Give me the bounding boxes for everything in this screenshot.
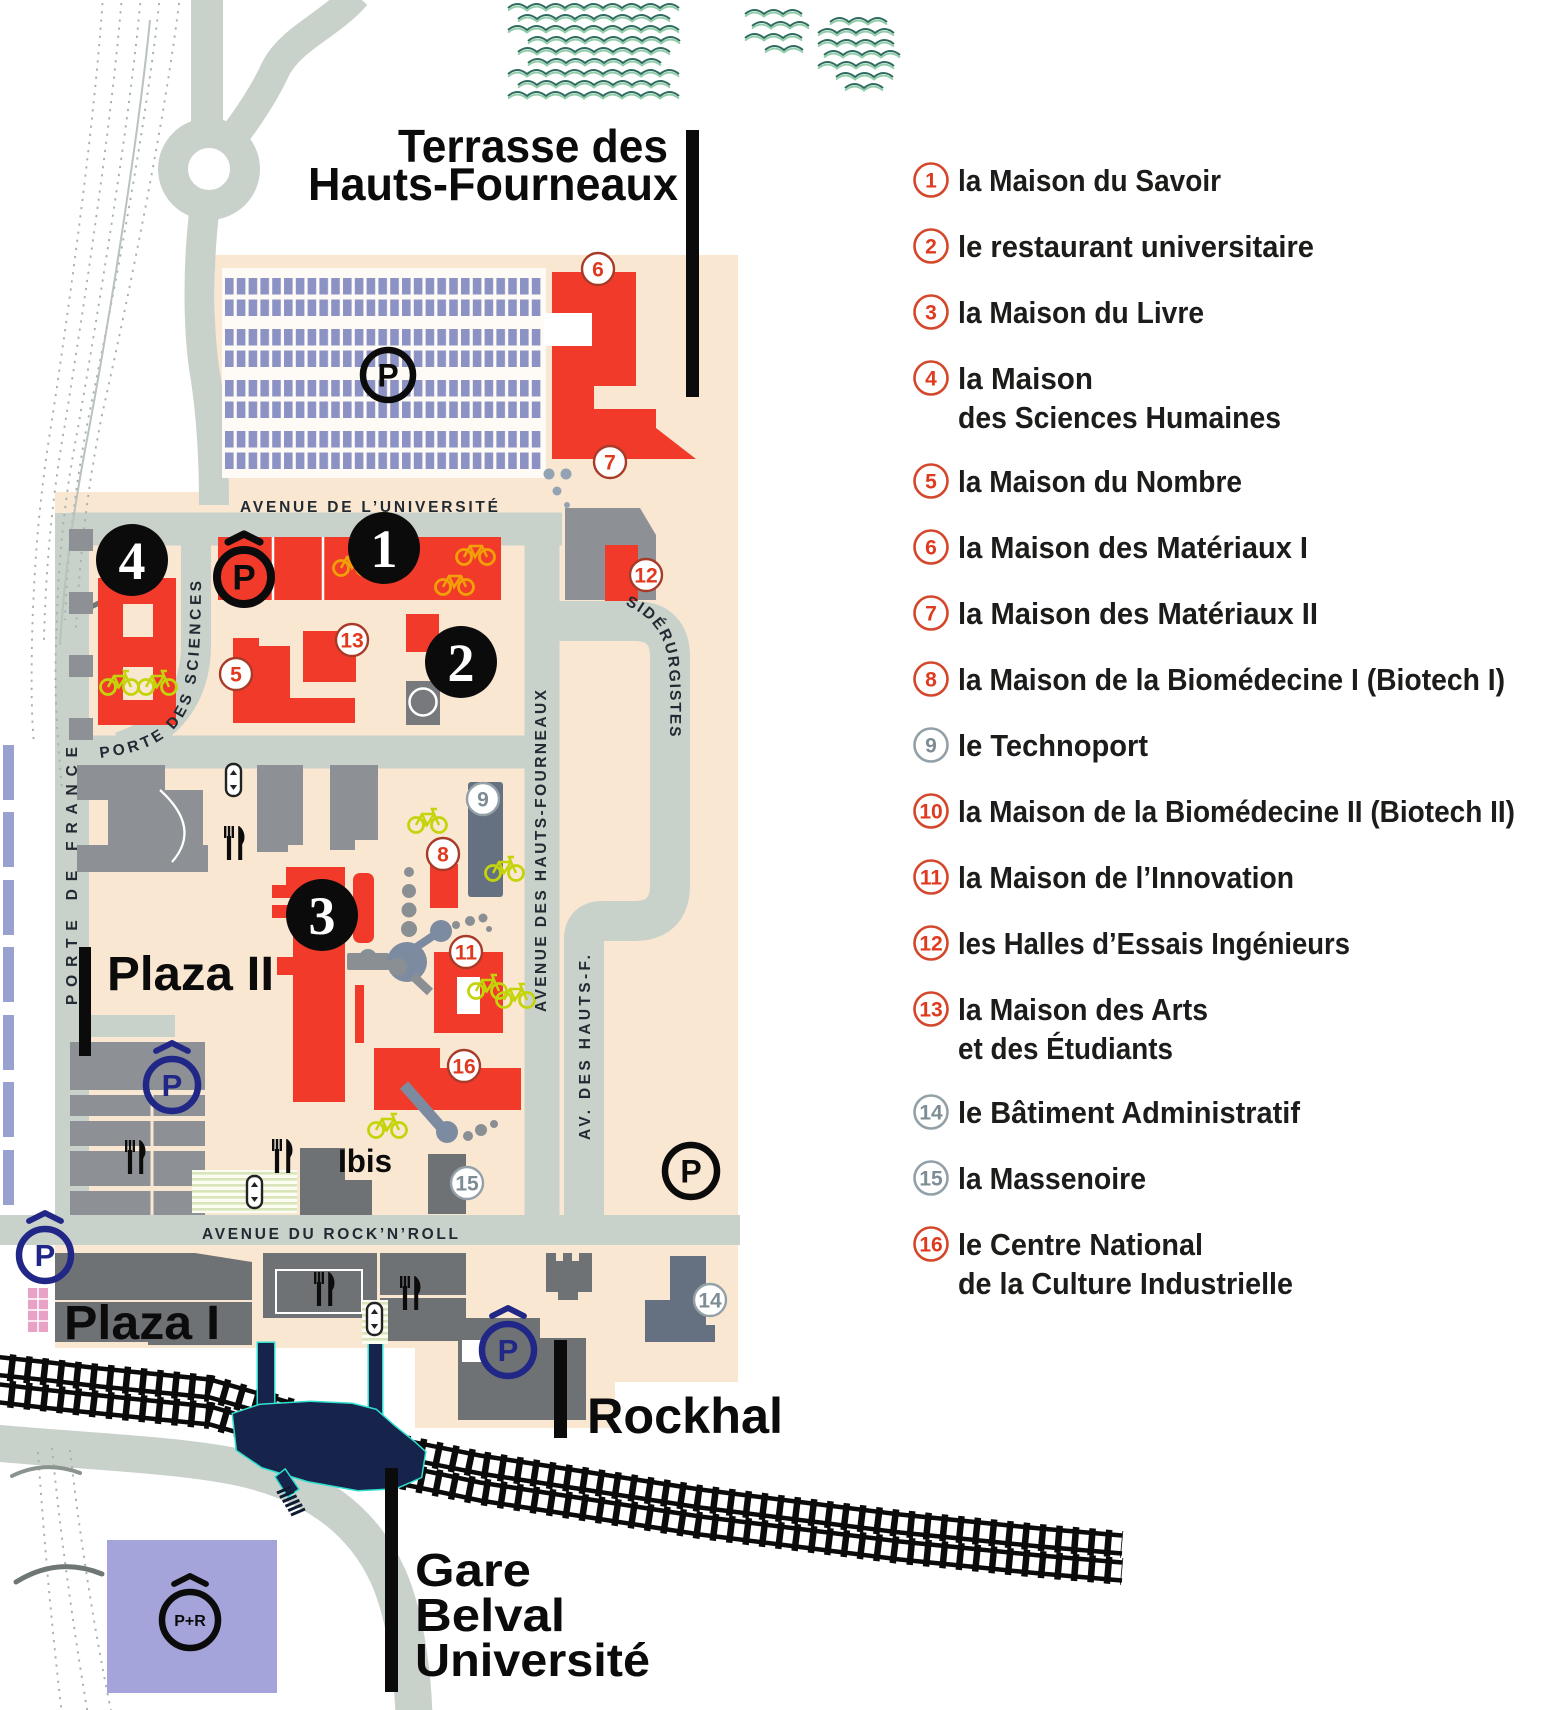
svg-text:PORTE DE FRANCE: PORTE DE FRANCE	[64, 747, 81, 1005]
svg-text:la Massenoire: la Massenoire	[958, 1161, 1146, 1196]
svg-text:la Maison des Matériaux I: la Maison des Matériaux I	[958, 530, 1308, 565]
svg-text:6: 6	[592, 259, 604, 282]
svg-text:1: 1	[925, 170, 937, 193]
svg-text:16: 16	[919, 1234, 942, 1257]
svg-text:P: P	[232, 559, 255, 598]
svg-text:la Maison de la Biomédecine I: la Maison de la Biomédecine I (Biotech I…	[958, 662, 1505, 697]
svg-text:la Maison: la Maison	[958, 361, 1093, 396]
svg-text:Université: Université	[415, 1634, 650, 1686]
svg-text:14: 14	[919, 1102, 943, 1125]
svg-text:Rockhal: Rockhal	[587, 1388, 783, 1444]
svg-text:la Maison du Savoir: la Maison du Savoir	[958, 163, 1221, 198]
svg-text:les Halles d’Essais Ingénieurs: les Halles d’Essais Ingénieurs	[958, 926, 1350, 961]
svg-text:la Maison de la Biomédecine II: la Maison de la Biomédecine II (Biotech …	[958, 794, 1515, 829]
svg-text:7: 7	[604, 452, 616, 475]
svg-text:9: 9	[477, 789, 489, 812]
svg-text:13: 13	[340, 630, 363, 653]
svg-text:15: 15	[455, 1173, 479, 1196]
svg-text:la Maison du Nombre: la Maison du Nombre	[958, 464, 1242, 499]
svg-text:Plaza I: Plaza I	[64, 1297, 220, 1350]
svg-text:2: 2	[448, 633, 475, 693]
svg-text:4: 4	[119, 531, 146, 591]
svg-text:la Maison des Arts: la Maison des Arts	[958, 992, 1208, 1027]
svg-text:12: 12	[634, 565, 657, 588]
svg-text:AVENUE DES HAUTS-FOURNEAUX: AVENUE DES HAUTS-FOURNEAUX	[533, 689, 550, 1012]
svg-text:3: 3	[309, 886, 336, 946]
svg-text:le Technoport: le Technoport	[958, 728, 1148, 763]
svg-text:la Maison des Matériaux II: la Maison des Matériaux II	[958, 596, 1318, 631]
svg-text:le restaurant universitaire: le restaurant universitaire	[958, 229, 1314, 264]
svg-text:2: 2	[925, 236, 937, 259]
svg-text:5: 5	[925, 471, 937, 494]
svg-text:la Maison de l’Innovation: la Maison de l’Innovation	[958, 860, 1294, 895]
svg-text:4: 4	[925, 368, 937, 391]
svg-text:le Bâtiment Administratif: le Bâtiment Administratif	[958, 1095, 1301, 1130]
svg-text:AVENUE DE L’UNIVERSITÉ: AVENUE DE L’UNIVERSITÉ	[240, 499, 498, 516]
svg-text:Plaza II: Plaza II	[107, 948, 274, 1001]
svg-text:10: 10	[919, 801, 942, 824]
svg-text:le Centre National: le Centre National	[958, 1227, 1203, 1262]
svg-text:5: 5	[230, 664, 242, 687]
svg-text:Ibis: Ibis	[338, 1143, 392, 1179]
svg-text:de la Culture Industrielle: de la Culture Industrielle	[958, 1266, 1293, 1301]
svg-text:P: P	[377, 358, 398, 394]
svg-text:8: 8	[925, 669, 937, 692]
svg-text:13: 13	[919, 999, 942, 1022]
svg-text:8: 8	[437, 844, 449, 867]
svg-text:P: P	[680, 1154, 701, 1190]
svg-text:des Sciences Humaines: des Sciences Humaines	[958, 400, 1281, 435]
svg-text:14: 14	[698, 1290, 722, 1313]
svg-text:15: 15	[919, 1168, 943, 1191]
svg-text:12: 12	[919, 933, 942, 956]
svg-text:Hauts-Fourneaux: Hauts-Fourneaux	[308, 158, 678, 210]
svg-text:P+R: P+R	[174, 1613, 206, 1630]
svg-text:3: 3	[925, 302, 937, 325]
svg-text:7: 7	[925, 603, 937, 626]
svg-text:la Maison du Livre: la Maison du Livre	[958, 295, 1204, 330]
svg-text:P: P	[35, 1238, 56, 1273]
svg-text:6: 6	[925, 537, 937, 560]
svg-text:P: P	[498, 1333, 519, 1368]
svg-text:1: 1	[371, 519, 398, 579]
svg-text:9: 9	[925, 735, 937, 758]
svg-text:P: P	[162, 1068, 183, 1103]
svg-text:AV. DES HAUTS-F.: AV. DES HAUTS-F.	[577, 955, 594, 1140]
svg-text:11: 11	[455, 942, 478, 965]
svg-text:11: 11	[920, 867, 943, 890]
svg-text:et des Étudiants: et des Étudiants	[958, 1031, 1173, 1066]
svg-text:16: 16	[452, 1056, 475, 1079]
